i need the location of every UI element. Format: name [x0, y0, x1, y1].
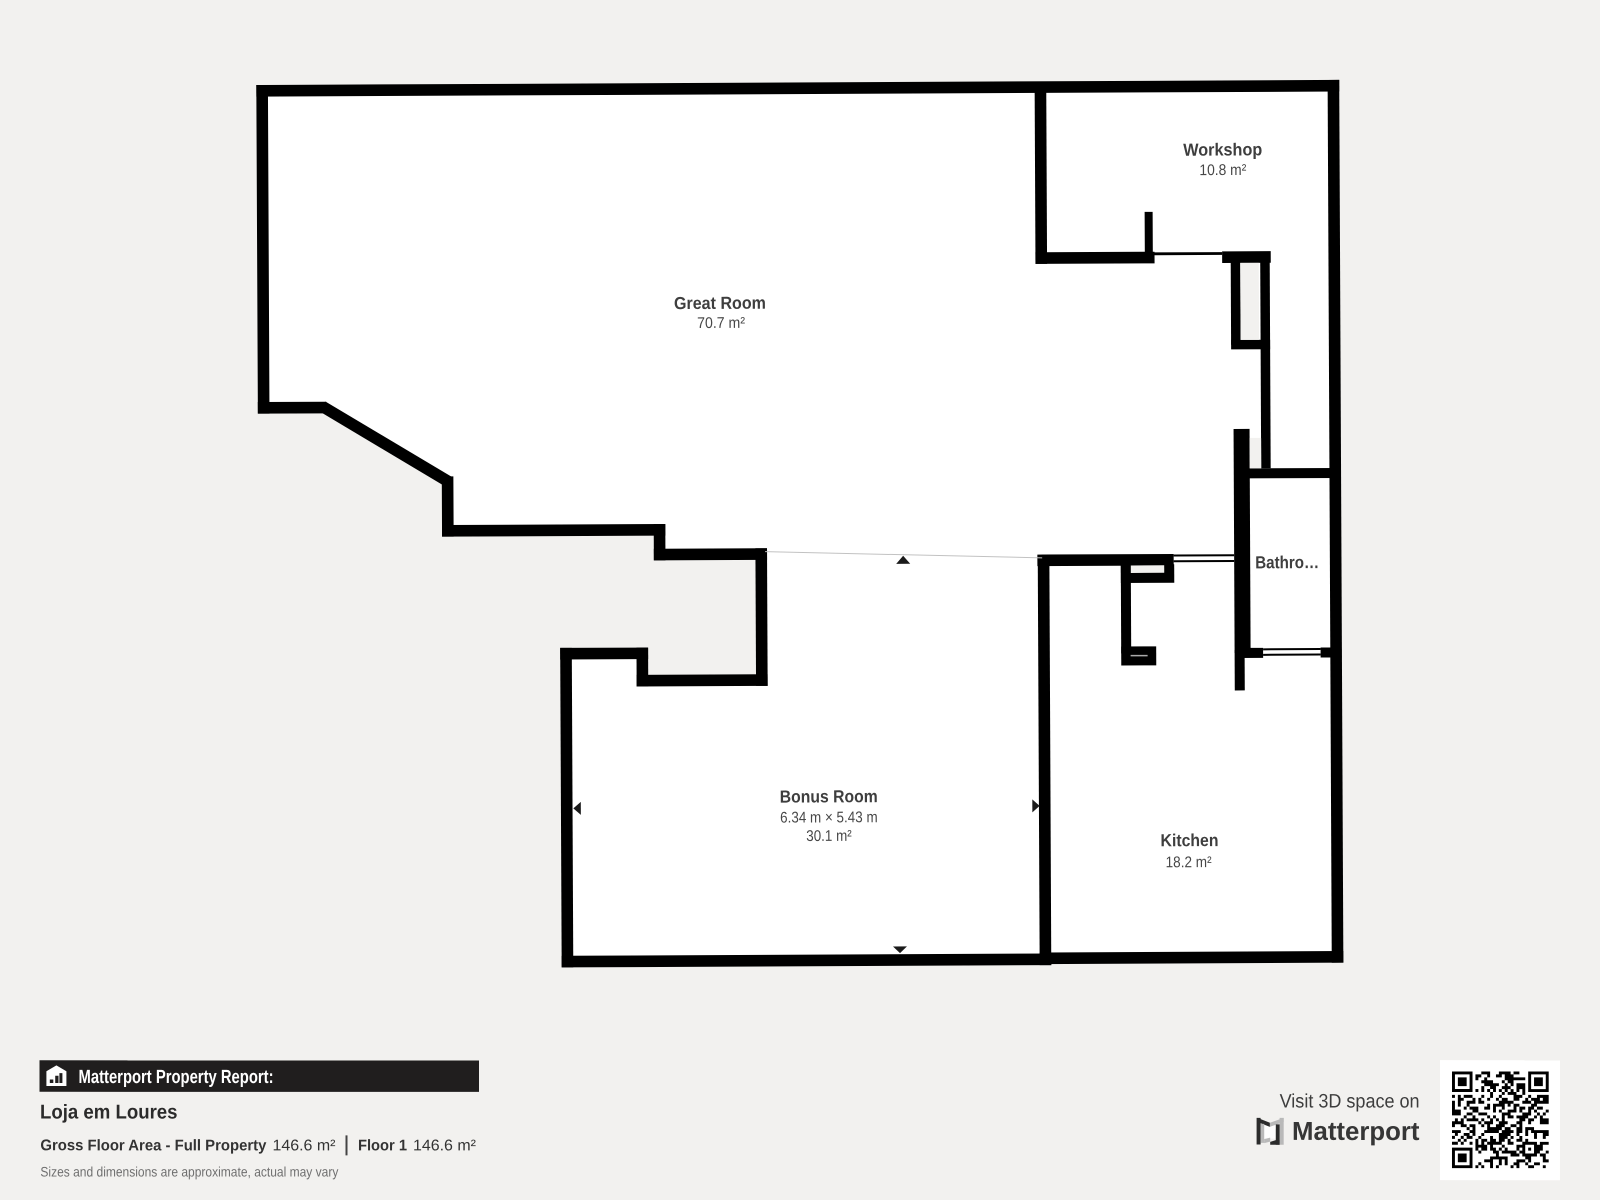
svg-text:Great Room: Great Room — [674, 293, 766, 313]
svg-text:146.6 m²: 146.6 m² — [413, 1137, 476, 1154]
svg-text:10.8 m²: 10.8 m² — [1199, 162, 1246, 179]
svg-text:146.6 m²: 146.6 m² — [272, 1137, 335, 1154]
svg-text:Kitchen: Kitchen — [1160, 830, 1218, 850]
svg-text:Bonus Room: Bonus Room — [780, 786, 878, 806]
svg-text:Loja em Loures: Loja em Loures — [40, 1101, 178, 1123]
svg-text:Workshop: Workshop — [1183, 139, 1262, 159]
svg-text:Gross Floor Area - Full Proper: Gross Floor Area - Full Property — [40, 1137, 266, 1154]
svg-text:Bathro…: Bathro… — [1255, 552, 1319, 572]
svg-text:70.7 m²: 70.7 m² — [697, 315, 745, 332]
svg-text:Matterport Property Report:: Matterport Property Report: — [79, 1067, 274, 1088]
svg-text:18.2 m²: 18.2 m² — [1166, 854, 1212, 871]
svg-text:Sizes and dimensions are appro: Sizes and dimensions are approximate, ac… — [40, 1164, 338, 1179]
svg-text:Visit 3D space on: Visit 3D space on — [1280, 1091, 1420, 1113]
svg-text:6.34 m × 5.43 m: 6.34 m × 5.43 m — [780, 809, 878, 826]
svg-text:Floor 1: Floor 1 — [358, 1137, 407, 1154]
svg-text:30.1 m²: 30.1 m² — [806, 828, 852, 845]
svg-text:Matterport: Matterport — [1292, 1116, 1420, 1146]
